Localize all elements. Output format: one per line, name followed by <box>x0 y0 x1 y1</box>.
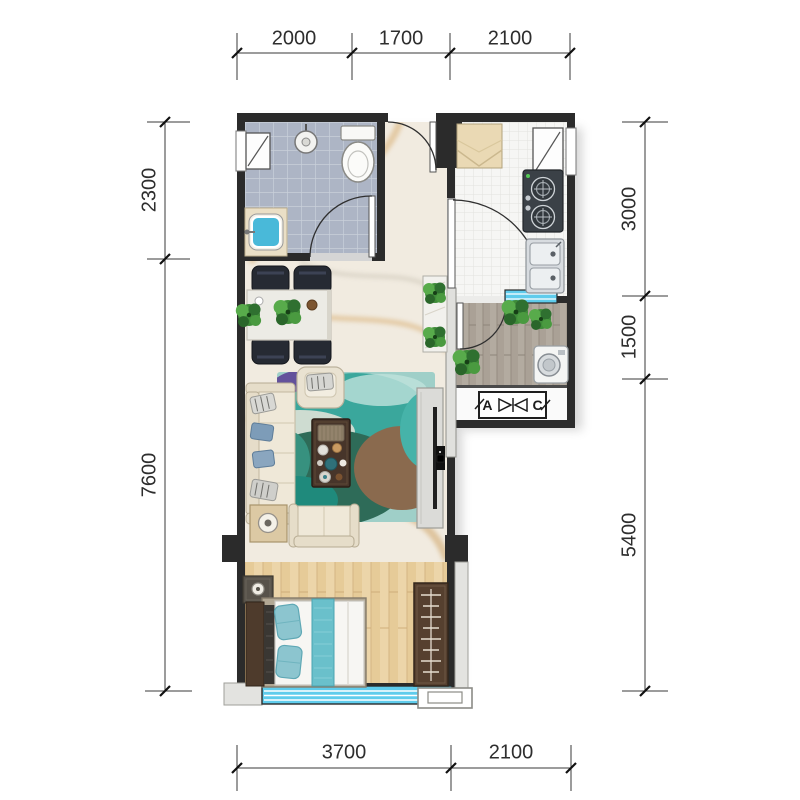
bed-runner <box>312 599 334 686</box>
sofa <box>246 383 295 524</box>
dim-label-top-3: 2100 <box>488 28 533 51</box>
loveseat <box>289 504 359 547</box>
washing-machine <box>534 346 568 383</box>
bed-pillow <box>275 645 302 679</box>
sofa-pillow <box>252 450 275 468</box>
dim-label-top-1: 2000 <box>272 28 317 51</box>
bed <box>246 598 366 687</box>
dim-label-bottom-1: 3700 <box>322 742 367 765</box>
dim-label-bottom-2: 2100 <box>489 742 534 765</box>
armchair <box>297 367 344 408</box>
wardrobe <box>414 583 448 686</box>
coffee-table <box>312 419 350 487</box>
bathroom-window <box>236 131 270 171</box>
floor-plan-drawing <box>0 0 800 800</box>
sofa-pillow <box>250 423 274 442</box>
balcony-plant <box>529 309 552 331</box>
table-plant <box>274 299 302 325</box>
dim-label-top-2: 1700 <box>379 28 424 51</box>
balcony-plant <box>502 299 530 325</box>
dim-label-left-2: 7600 <box>139 453 162 498</box>
sofa-pillow <box>250 479 279 501</box>
cabinet-plant <box>423 283 446 305</box>
gas-stove <box>523 170 563 232</box>
headboard <box>246 602 264 686</box>
dim-label-left-1: 2300 <box>139 168 162 213</box>
bowl <box>307 300 317 310</box>
tv-console <box>417 388 445 528</box>
kitchen-window <box>533 128 576 175</box>
corner-window-box <box>418 688 472 708</box>
dim-label-right-1: 3000 <box>619 187 642 232</box>
bed-pillow <box>274 603 302 640</box>
floor-plant <box>236 303 261 327</box>
bowtie-icon <box>498 398 528 412</box>
side-table-lamp <box>250 505 287 542</box>
toilet <box>341 126 375 182</box>
ac-platform-label: A C <box>479 392 546 418</box>
dim-label-right-3: 5400 <box>619 513 642 558</box>
floor-plan-page: 2000 1700 2100 3700 2100 2300 7600 3000 … <box>0 0 800 800</box>
ac-label-a: A <box>482 397 492 413</box>
kitchen-balcony-threshold <box>455 296 505 303</box>
kitchen-sink <box>526 239 564 293</box>
dim-label-right-2: 1500 <box>619 315 642 360</box>
wash-basin <box>245 208 288 256</box>
balcony-plant <box>453 349 481 375</box>
cabinet-plant <box>423 327 446 349</box>
fridge <box>457 124 502 168</box>
ac-label-c: C <box>533 397 543 413</box>
